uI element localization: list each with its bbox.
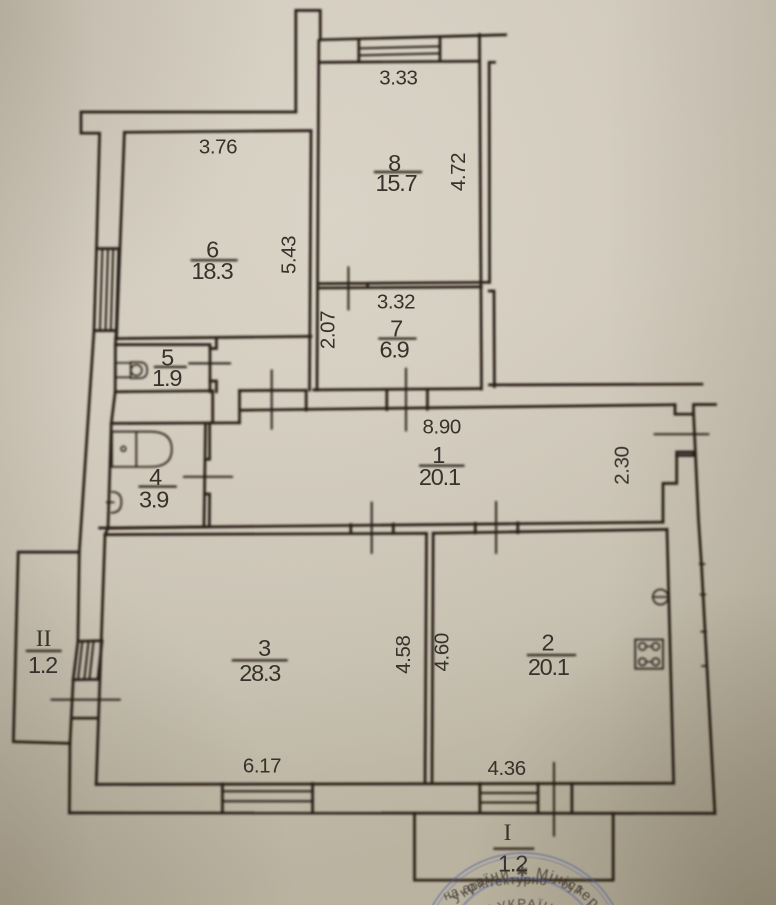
svg-text:18.3: 18.3 (192, 258, 234, 284)
svg-text:15.7: 15.7 (376, 170, 417, 196)
svg-text:2.30: 2.30 (611, 446, 634, 484)
svg-text:4.72: 4.72 (447, 153, 470, 191)
svg-text:4.58: 4.58 (392, 636, 415, 674)
svg-text:6.17: 6.17 (243, 754, 281, 777)
svg-text:3.33: 3.33 (379, 67, 417, 90)
svg-text:6.9: 6.9 (379, 336, 408, 362)
svg-text:3.32: 3.32 (377, 290, 415, 313)
svg-text:8.90: 8.90 (423, 415, 461, 438)
svg-text:II: II (36, 626, 52, 652)
svg-text:28.3: 28.3 (239, 660, 281, 686)
svg-text:3: 3 (258, 635, 271, 661)
svg-text:2.07: 2.07 (317, 311, 340, 349)
svg-text:3.76: 3.76 (199, 135, 237, 158)
svg-text:4.36: 4.36 (487, 757, 525, 780)
svg-text:5.43: 5.43 (278, 236, 301, 274)
svg-text:2: 2 (541, 630, 553, 656)
svg-text:I: I (504, 820, 512, 846)
svg-text:3.9: 3.9 (139, 486, 168, 512)
svg-text:20.1: 20.1 (419, 464, 460, 490)
svg-text:1.9: 1.9 (152, 365, 181, 391)
svg-text:4.60: 4.60 (430, 633, 453, 671)
svg-text:1.2: 1.2 (28, 652, 57, 678)
svg-text:20.1: 20.1 (528, 654, 569, 680)
